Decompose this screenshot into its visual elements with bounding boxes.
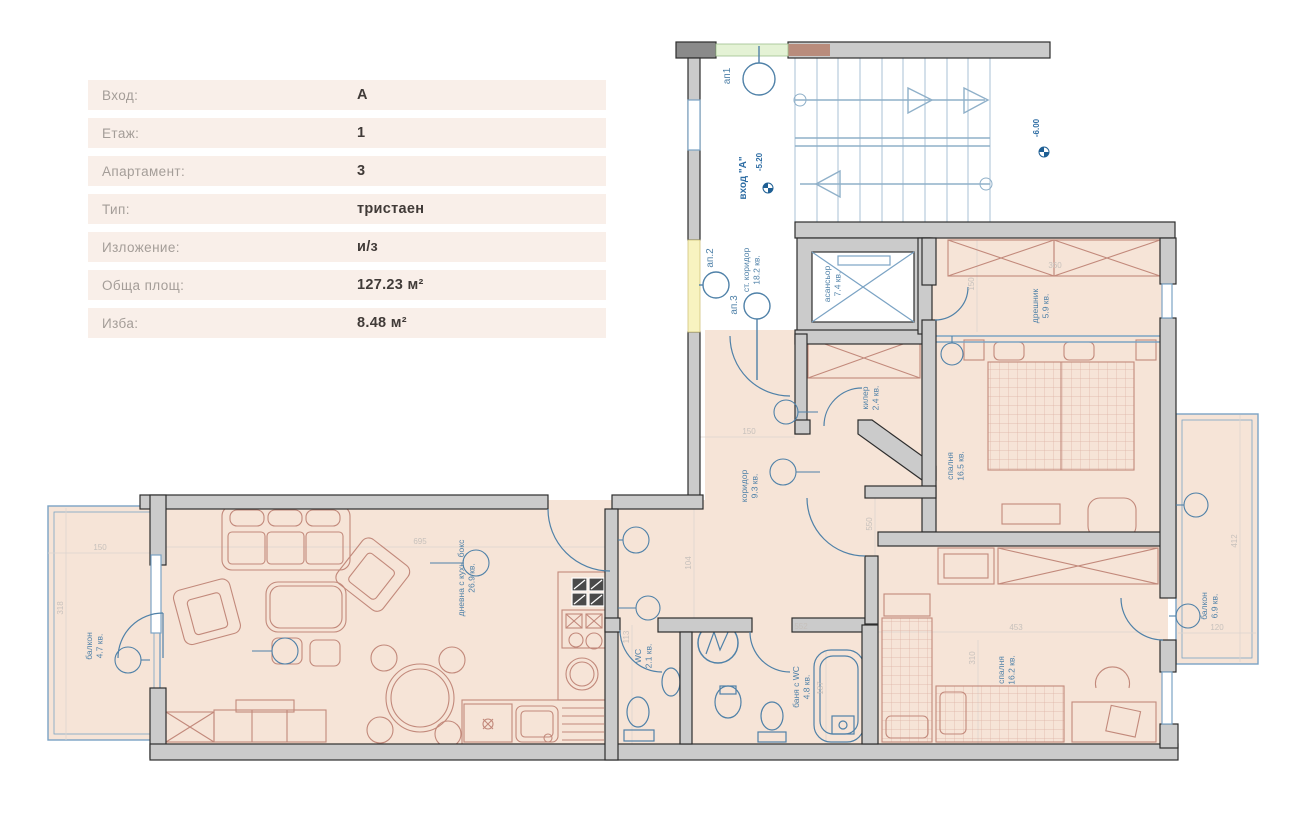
svg-text:150: 150: [93, 543, 107, 552]
room-label-bedroom1: спалня: [945, 452, 955, 480]
window: [1162, 672, 1172, 724]
svg-text:552: 552: [794, 622, 808, 631]
entrance-label: вход "А": [738, 156, 749, 200]
room-label-dressing: дрешник: [1030, 289, 1040, 324]
svg-text:2.4 кв.: 2.4 кв.: [871, 386, 881, 411]
svg-text:120: 120: [1210, 623, 1224, 632]
svg-text:187: 187: [816, 681, 825, 695]
room-label-wc: WC: [633, 649, 643, 663]
room-label-bedroom2: спалня: [996, 656, 1006, 684]
room-label-stair-corridor: ст. коридор: [741, 248, 751, 293]
level-marker-right: [1039, 147, 1049, 157]
svg-text:4.8 кв.: 4.8 кв.: [802, 675, 812, 700]
svg-text:453: 453: [1009, 623, 1023, 632]
apartment-floor: [48, 235, 1258, 750]
level-right: -6.00: [1032, 118, 1041, 137]
svg-text:5.9 кв.: 5.9 кв.: [1041, 294, 1051, 319]
room-label-bath: баня с WC: [791, 666, 801, 708]
svg-text:2.1 кв.: 2.1 кв.: [644, 644, 654, 669]
ap2-label: ап.2: [705, 248, 716, 268]
ap1-label: ап1: [722, 67, 733, 84]
entrance-door-ap2: [688, 240, 700, 332]
room-label-corridor: коридор: [739, 470, 749, 503]
svg-text:310: 310: [968, 651, 977, 665]
svg-text:16.2 кв.: 16.2 кв.: [1007, 655, 1017, 685]
svg-text:4.7 кв.: 4.7 кв.: [95, 634, 105, 659]
level-stair: -5.20: [755, 152, 764, 171]
svg-text:412: 412: [1230, 534, 1239, 548]
svg-text:150: 150: [967, 277, 976, 291]
svg-text:550: 550: [865, 517, 874, 531]
svg-text:6.9 кв.: 6.9 кв.: [1210, 594, 1220, 619]
ap3-label: ап.3: [729, 295, 740, 315]
window: [688, 100, 700, 150]
svg-text:16.5 кв.: 16.5 кв.: [956, 451, 966, 481]
room-label-balcony-right: балкон: [1199, 592, 1209, 620]
room-label-living: дневна с кухн. бокс: [456, 539, 466, 616]
room-label-closet: килер: [860, 386, 870, 409]
svg-text:26.9 кв.: 26.9 кв.: [467, 563, 477, 593]
ap2-circle: [703, 272, 729, 298]
level-marker-stair: [763, 183, 773, 193]
window: [151, 555, 161, 633]
svg-text:318: 318: [56, 601, 65, 615]
ap1-circle: [743, 63, 775, 95]
svg-text:18.2 кв.: 18.2 кв.: [752, 255, 762, 285]
svg-text:695: 695: [413, 537, 427, 546]
entrance-door-ap1: [716, 44, 788, 56]
svg-text:360: 360: [1048, 261, 1062, 270]
room-label-balcony-left: балкон: [84, 632, 94, 660]
svg-text:113: 113: [622, 630, 631, 643]
floor-plan-drawing: дневна с кухн. бокс 26.9 кв. балкон 4.7 …: [0, 0, 1297, 834]
room-label-elevator: асансьор: [822, 265, 832, 302]
staircase: [794, 58, 992, 222]
window: [1162, 284, 1172, 318]
ap3-circle: [744, 293, 770, 319]
svg-text:104: 104: [684, 556, 693, 570]
svg-text:7.4 кв.: 7.4 кв.: [833, 272, 843, 297]
svg-text:150: 150: [742, 427, 756, 436]
floor-plan-page: Вход: А Етаж: 1 Апартамент: 3 Тип: трист…: [0, 0, 1297, 834]
svg-text:9.3 кв.: 9.3 кв.: [750, 474, 760, 499]
